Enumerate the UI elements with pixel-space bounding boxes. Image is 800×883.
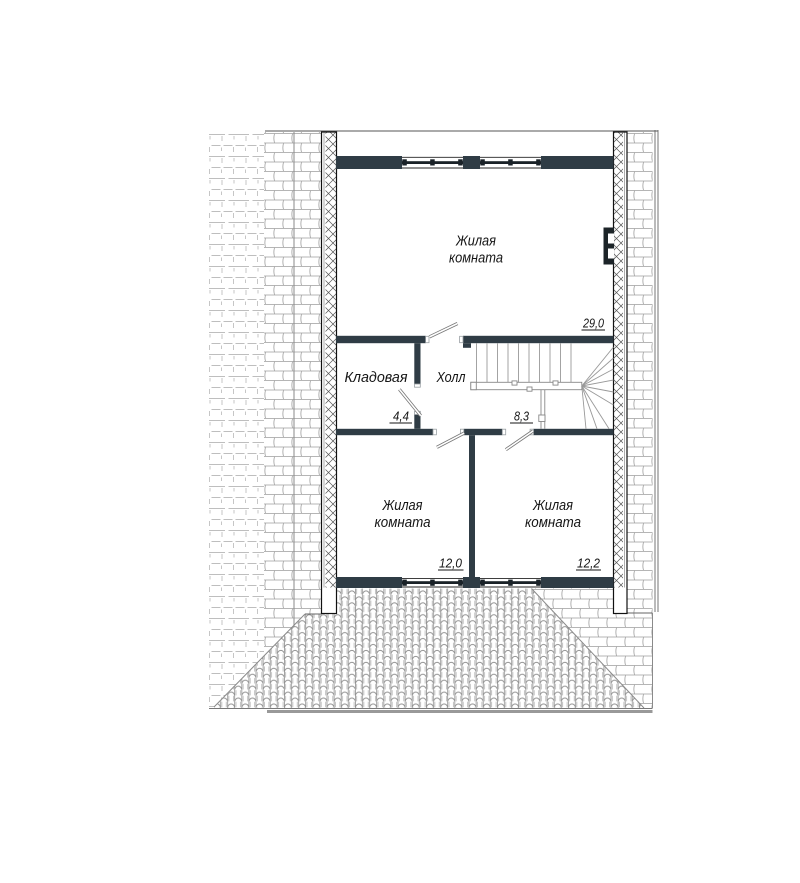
- svg-text:комната: комната: [449, 250, 503, 267]
- svg-text:комната: комната: [525, 514, 581, 531]
- svg-text:Жилая: Жилая: [382, 497, 423, 514]
- svg-text:4,4: 4,4: [393, 410, 409, 424]
- svg-text:8,3: 8,3: [514, 410, 529, 424]
- svg-text:29,0: 29,0: [582, 317, 604, 331]
- svg-text:Холл: Холл: [436, 369, 466, 386]
- svg-text:Жилая: Жилая: [532, 497, 573, 514]
- svg-text:Кладовая: Кладовая: [345, 369, 408, 386]
- svg-text:12,0: 12,0: [439, 557, 462, 571]
- svg-text:комната: комната: [375, 514, 431, 531]
- svg-text:12,2: 12,2: [577, 557, 600, 571]
- svg-text:Жилая: Жилая: [455, 233, 496, 250]
